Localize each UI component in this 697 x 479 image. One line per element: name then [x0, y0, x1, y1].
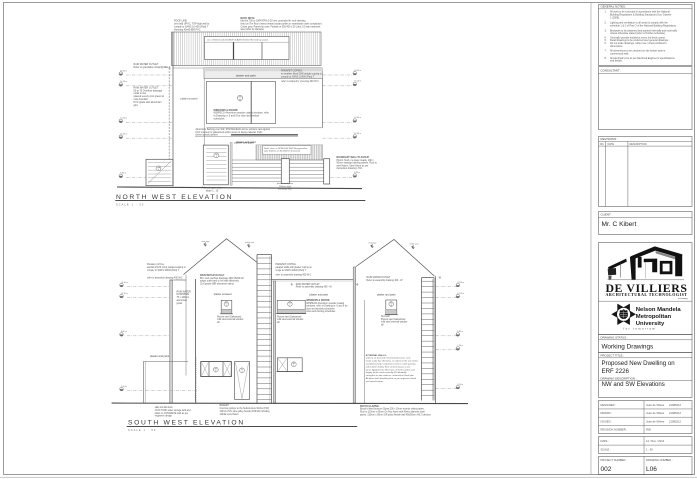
svg-text:RAIN WATER OUTLET: RAIN WATER OUTLET	[296, 283, 320, 286]
svg-text:Juan de Villiers: Juan de Villiers	[646, 403, 665, 407]
svg-text:fixed on The Roc's insect-trea: fixed on The Roc's insect-treated cedar …	[241, 23, 323, 26]
svg-text:SOUTH GLAZING:: SOUTH GLAZING:	[360, 405, 380, 408]
svg-text:1 : 50: 1 : 50	[646, 448, 653, 452]
svg-text:aluminium: aluminium	[177, 300, 188, 302]
svg-text:RAIN WATER OUTLET: RAIN WATER OUTLET	[367, 276, 391, 279]
svg-text:110dia round basin: 110dia round basin	[220, 413, 240, 416]
svg-text:21085212: 21085212	[669, 411, 681, 415]
svg-text:DRAWING STATUS :: DRAWING STATUS :	[601, 336, 628, 340]
svg-text:DRAWING DESCRIPTION :: DRAWING DESCRIPTION :	[601, 376, 637, 380]
svg-text:Stormsill: Stormsill	[381, 315, 390, 318]
svg-text:sizes and framing schedules: sizes and framing schedules	[306, 310, 336, 313]
svg-text:Juan de Villiers: Juan de Villiers	[646, 411, 665, 415]
svg-text:BOUNDARY WALL PLASTER:: BOUNDARY WALL PLASTER:	[337, 156, 370, 159]
svg-text:plaster and paint: plaster and paint	[310, 294, 329, 297]
svg-text:RAIN WATER OUTLET: RAIN WATER OUTLET	[200, 274, 225, 277]
svg-text:panes. 110mm x 90mm OR joists: panes. 110mm x 90mm OR joists flexible w…	[360, 414, 432, 417]
svg-text:plaster and paint: plaster and paint	[277, 182, 294, 185]
svg-text:PROJECT TITLE :: PROJECT TITLE :	[601, 354, 625, 358]
svg-text:Bosch's listed horizont Clipse: Bosch's listed horizont Clipse 200 x 10m…	[360, 408, 425, 411]
svg-text:6.: 6.	[605, 42, 607, 45]
svg-text:ISSUED :: ISSUED :	[601, 419, 613, 423]
svg-text:90mm standup building panels.: 90mm standup building panels. Rout to	[337, 162, 378, 165]
svg-text:110mm PVC pipe gulley beside (: 110mm PVC pipe gulley beside (P20/10) in…	[220, 411, 271, 413]
svg-text:Klip-lok 700 or SAFINTRA 0.53: Klip-lok 700 or SAFINTRA 0.53 mm conceal…	[241, 20, 307, 23]
svg-text:slope 1 : 10: slope 1 : 10	[206, 190, 219, 193]
svg-text:Steel ‘slats’ or SPRIGGS 9082: Steel ‘slats’ or SPRIGGS 9082 Bougainvil…	[264, 147, 308, 150]
svg-text:002: 002	[601, 466, 612, 473]
svg-text:RAIN WATER: RAIN WATER	[177, 290, 192, 293]
svg-text:Parapet roof line: Parapet roof line	[147, 263, 165, 266]
svg-text:Refer to assembly drawing 400: Refer to assembly drawing 400 - W	[296, 286, 333, 289]
svg-text:asphalt 15x75 (min) parapet ed: asphalt 15x75 (min) parapet edging to	[147, 266, 186, 269]
svg-text:PROJECT NUMBER :: PROJECT NUMBER :	[601, 458, 628, 462]
svg-text:NO.: NO.	[600, 143, 605, 146]
svg-text:1 (2008).: 1 (2008).	[610, 16, 620, 19]
svg-text:plaster encased: plaster encased	[181, 97, 199, 100]
svg-text:SOUTH WEST ELEVATION: SOUTH WEST ELEVATION	[128, 420, 245, 427]
svg-text:vent pipe: vent pipe	[201, 240, 210, 243]
svg-text:1: 1	[289, 305, 290, 307]
svg-text:parapet walls with plaster cop: parapet walls with plaster coping on	[276, 266, 313, 269]
svg-text:schedules.: schedules.	[214, 117, 226, 120]
svg-text:door and window schedules: door and window schedules	[306, 307, 335, 310]
svg-text:1: 1	[216, 156, 217, 158]
svg-text:schedule 1 & 2 of Part O of th: schedule 1 & 2 of Part O of the National…	[610, 24, 677, 27]
svg-text:Brm roof overflow drainage 400: Brm roof overflow drainage 400x75x50 ful…	[200, 277, 244, 280]
svg-text:1: 1	[226, 305, 227, 307]
svg-text:in training: in training	[678, 297, 688, 300]
svg-text:mild steel external window: mild steel external window	[277, 318, 304, 321]
svg-text:Nelson Mandela: Nelson Mandela	[636, 307, 682, 313]
svg-text:unless otherwise stated (refer: unless otherwise stated (refer to finish…	[610, 32, 666, 35]
svg-text:ROOF NOTE:: ROOF NOTE:	[241, 18, 256, 20]
svg-text:DESIGNED :: DESIGNED :	[601, 403, 617, 407]
svg-text:dapply rlinfar-vand contactly: dapply rlinfar-vand contactly 410 blenda…	[366, 371, 408, 374]
svg-text:plaster and paint: plaster and paint	[150, 354, 169, 358]
svg-text:8.: 8.	[605, 57, 607, 60]
svg-text:75 x 100mm: 75 x 100mm	[177, 297, 190, 299]
svg-text:steel other lip diameter.: steel other lip diameter.	[241, 28, 265, 31]
svg-text:2.: 2.	[605, 22, 607, 25]
svg-text:for tomorrow: for tomorrow	[624, 327, 656, 331]
svg-text:NORTH WEST ELEVATION: NORTH WEST ELEVATION	[116, 194, 233, 201]
svg-text:and specifications.: and specifications.	[366, 380, 384, 383]
svg-text:refer to carpentry covering 40: refer to carpentry covering 400 W-3	[281, 80, 319, 83]
svg-text:Picture steel Galvanized: Picture steel Galvanized	[381, 318, 406, 321]
svg-text:1: 1	[215, 370, 216, 372]
svg-text:3.: 3.	[605, 29, 607, 32]
svg-text:upto 600mm on 80-180mm brickwo: upto 600mm on 80-180mm brickwork	[264, 150, 301, 153]
svg-text:12 / Nov / 2014: 12 / Nov / 2014	[646, 439, 665, 443]
svg-text:engineers design: engineers design	[155, 415, 173, 418]
svg-text:Proposed New Dwelling on: Proposed New Dwelling on	[602, 360, 675, 367]
svg-text:ERF 2226: ERF 2226	[602, 368, 630, 375]
svg-text:Concrete gulleys to the Substr: Concrete gulleys to the Substructure Wor…	[220, 407, 270, 410]
svg-text:DRAWING NUMBER :: DRAWING NUMBER :	[646, 458, 673, 462]
svg-text:and glamasively. Cradured scre: and glamasively. Cradured screed as soli…	[366, 363, 417, 366]
svg-text:verge to SANS 10400 (Part) T: verge to SANS 10400 (Part) T	[276, 269, 307, 272]
svg-text:vent pipe: vent pipe	[368, 241, 377, 244]
svg-text:21085212: 21085212	[669, 419, 681, 423]
svg-text:DRAWN :: DRAWN :	[601, 411, 613, 415]
svg-text:brick courses for galvanized w: brick courses for galvanized works never…	[196, 131, 263, 134]
svg-text:DATE: DATE	[608, 143, 615, 146]
svg-text:Mr. C Kibert: Mr. C Kibert	[602, 221, 637, 228]
svg-text:steel frame. Steel frame as pe: steel frame. Steel frame as per	[337, 164, 369, 167]
svg-text:strengthin to side audio as i: strengthin to side audio as i infursed o…	[366, 374, 415, 377]
svg-text:Picture steel Galvanized: Picture steel Galvanized	[277, 315, 302, 318]
svg-text:plaster and paint: plaster and paint	[377, 294, 396, 297]
svg-text:gutter: gutter	[177, 302, 183, 305]
svg-text:CLIENT :: CLIENT :	[601, 213, 613, 217]
svg-text:R00: R00	[646, 428, 651, 432]
svg-text:DESCRIPTION: DESCRIPTION	[630, 143, 647, 146]
svg-text:plaster and paint: plaster and paint	[236, 74, 256, 78]
svg-text:Metropolitan: Metropolitan	[636, 314, 672, 320]
svg-text:Colour grey. Panels lip rows.: Colour grey. Panels lip rows. Fishtail o…	[241, 25, 321, 28]
svg-text:moter aside liys otherwise, an: moter aside liys otherwise, an adeve to …	[366, 360, 419, 363]
svg-text:plaster encased: plaster encased	[214, 293, 232, 296]
svg-text:Picture steel Galvanized: Picture steel Galvanized	[217, 315, 242, 318]
svg-text:DATE :: DATE :	[601, 439, 610, 443]
svg-text:set c 1950mm (sill) DOUBLE GLA: set c 1950mm (sill) DOUBLE GLAZED 6/12/6…	[207, 38, 268, 41]
svg-text:All blown both diwalling distr: All blown both diwalling distr as per en…	[366, 377, 417, 380]
svg-text:walls to an dual wall. Unartic: walls to an dual wall. Unarticulated cor…	[366, 357, 411, 360]
svg-text:GULLEY:: GULLEY:	[220, 405, 230, 407]
svg-text:230mm high: 230mm high	[279, 186, 292, 188]
svg-text:commenced with.: commenced with.	[610, 53, 629, 56]
svg-text:slab and fall down: slab and fall down	[155, 407, 174, 409]
svg-text:windows. refer to Drawing nr.: windows. refer to Drawing nr. 6 and 9 fo…	[306, 305, 347, 308]
svg-text:GENERAL NOTES:: GENERAL NOTES:	[601, 5, 626, 9]
svg-text:refer to assembly drawing 400: refer to assembly drawing 400 W-1	[276, 274, 312, 277]
svg-text:1: 1	[158, 169, 159, 171]
svg-text:SCALE :: SCALE :	[601, 448, 612, 452]
svg-text:NW and SW Elevations: NW and SW Elevations	[602, 381, 665, 388]
svg-text:pallet on CONCRETE slab as per: pallet on CONCRETE slab as per	[155, 412, 189, 415]
svg-text:PARAPET COPING:: PARAPET COPING:	[276, 263, 297, 266]
svg-text:WINDOWS & DOORS:: WINDOWS & DOORS:	[306, 300, 330, 302]
svg-text:1: 1	[242, 371, 243, 373]
svg-text:Working Drawings: Working Drawings	[602, 344, 654, 351]
svg-text:grid.: grid.	[134, 104, 139, 107]
svg-text:JOJO TANK water storage tank a: JOJO TANK water storage tank and	[155, 409, 191, 412]
svg-text:mild steel external window: mild steel external window	[381, 321, 408, 324]
svg-text:Juan de Villiers: Juan de Villiers	[646, 419, 665, 423]
svg-text:21085212: 21085212	[669, 403, 681, 407]
svg-text:Refer to assembly drawing 400: Refer to assembly drawing 400 - W	[367, 279, 404, 282]
svg-text:outlet vent: outlet vent	[245, 241, 255, 244]
svg-text:Plumb, flush, no-lower treads.: Plumb, flush, no-lower treads. 230 x	[337, 159, 375, 162]
svg-text:SCALE 1 : 50: SCALE 1 : 50	[128, 429, 156, 432]
svg-text:plaster and paint: plaster and paint	[235, 140, 254, 144]
svg-text:L06: L06	[646, 466, 657, 473]
svg-text:mild steel external window: mild steel external window	[217, 318, 244, 321]
svg-text:refer to assembly drawing 400: refer to assembly drawing 400 W-1	[147, 277, 183, 280]
svg-text:comply to SANS 10400 (Part) T: comply to SANS 10400 (Part) T	[281, 75, 315, 78]
svg-text:spigot outlet and to be lead e: spigot outlet and to be lead effectively	[200, 280, 240, 283]
svg-text:Aluminium flashing over WR. ST: Aluminium flashing over WR. STRINGFIELD …	[196, 128, 271, 131]
svg-text:outlet vent: outlet vent	[409, 243, 419, 246]
svg-text:with 110mm hollow thick cement: with 110mm hollow thick cement board, sc…	[366, 365, 411, 368]
svg-text:REVISION NUMBER :: REVISION NUMBER :	[601, 428, 628, 432]
svg-text:7.: 7.	[605, 50, 607, 53]
svg-text:EXTERNAL WALLS:: EXTERNAL WALLS:	[366, 354, 387, 357]
svg-text:Civil grade (IBR aluminium all: Civil grade (IBR aluminium alloy)	[200, 283, 234, 286]
svg-text:ARCHITECTURAL TECHNOLOGIST: ARCHITECTURAL TECHNOLOGIST	[606, 292, 688, 297]
svg-text:1: 1	[293, 365, 294, 367]
svg-text:and details.: and details.	[610, 60, 623, 63]
svg-text:basin. Apply thums fiber basic: basin. Apply thums fiber basic in thoth …	[366, 368, 416, 371]
svg-text:Rout to 110mm x 90mm On Roc fr: Rout to 110mm x 90mm On Roc frame with 4…	[360, 411, 425, 414]
svg-text:sheeting 40x40 IBR PVC: sheeting 40x40 IBR PVC	[174, 28, 201, 31]
svg-text:REVISIONS :: REVISIONS :	[601, 137, 619, 141]
svg-text:WISPECO Aluminium powder coate: WISPECO Aluminium powder coated	[306, 302, 345, 305]
svg-text:comply to SANS 10400 (Part) T: comply to SANS 10400 (Part) T	[147, 269, 180, 272]
svg-text:instruction drawing L704.: instruction drawing L704.	[337, 167, 363, 170]
svg-text:boundary wall: boundary wall	[278, 188, 292, 191]
svg-text:CONSULTANT :: CONSULTANT :	[601, 69, 622, 73]
svg-text:dimensions.: dimensions.	[610, 45, 623, 48]
svg-text:1.: 1.	[605, 11, 607, 14]
svg-text:SCALE 1 : 50: SCALE 1 : 50	[116, 204, 144, 207]
svg-text:DOWNPIPE: DOWNPIPE	[177, 294, 190, 296]
